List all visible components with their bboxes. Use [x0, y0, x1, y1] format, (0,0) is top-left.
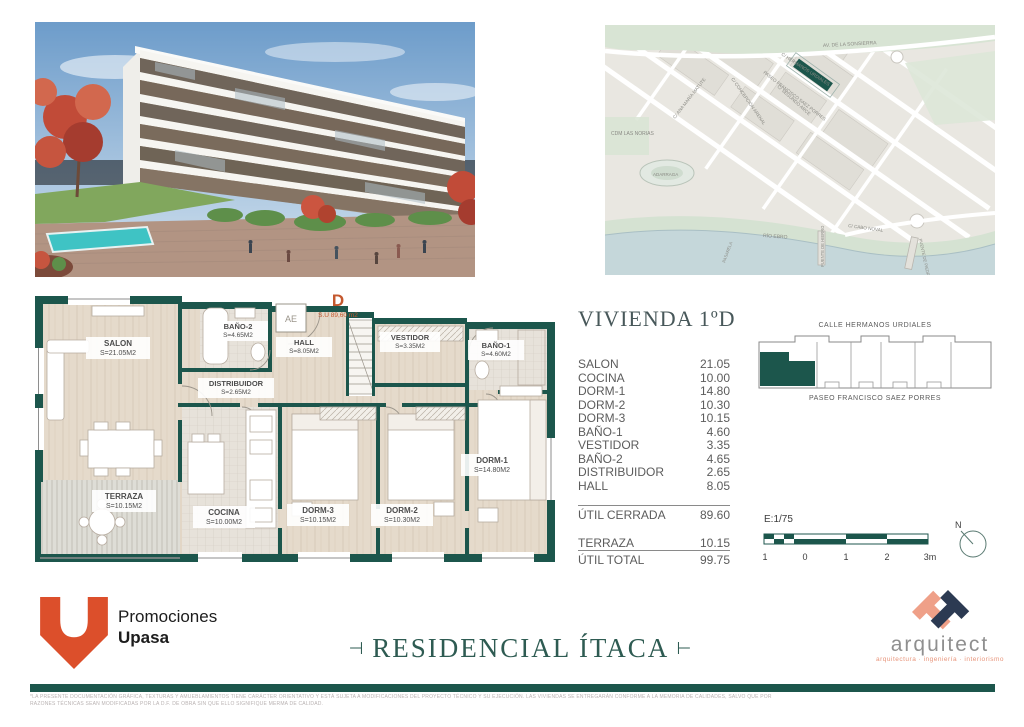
room-name: VESTIDOR — [391, 333, 430, 342]
room-label: VESTIDOR — [578, 439, 639, 453]
total-label: ÚTIL TOTAL — [578, 554, 644, 568]
room-value: 10.30 — [700, 399, 730, 413]
terrace-value: 10.15 — [700, 537, 730, 551]
table-row: DORM-114.80 — [578, 385, 730, 399]
unit-title: VIVIENDA 1ºD — [578, 306, 748, 332]
scale-tick: 3m — [924, 552, 937, 562]
floor-plan: AE D S.U 89,60 m2 SALON S=21.05M2 TERRAZ… — [30, 290, 560, 575]
room-name: DORM-3 — [302, 506, 334, 515]
subtotal-row: ÚTIL CERRADA89.60 — [578, 505, 730, 523]
room-label: HALL — [578, 480, 608, 494]
room-name: DORM-1 — [476, 456, 508, 465]
room-value: 4.65 — [707, 453, 730, 467]
room-area: S=10.15M2 — [300, 517, 336, 524]
unit-area-note: S.U 89,60 m2 — [318, 312, 358, 319]
title-ornament-right: ⊢ — [677, 639, 692, 658]
table-row: COCINA10.00 — [578, 372, 730, 386]
elevator: AE — [276, 304, 306, 332]
room-name: DISTRIBUIDOR — [209, 379, 264, 388]
room-name: DORM-2 — [386, 506, 418, 515]
room-label: BAÑO-1 — [578, 426, 623, 440]
table-row: HALL8.05 — [578, 480, 730, 494]
promoter-name: Promociones Upasa — [118, 606, 217, 648]
terrace-row: TERRAZA10.15 — [578, 537, 730, 551]
room-area: S=21.05M2 — [100, 350, 136, 357]
table-row: DORM-310.15 — [578, 412, 730, 426]
room-value: 21.05 — [700, 358, 730, 372]
building-render-image — [35, 22, 475, 277]
elevator-label: AE — [285, 314, 297, 324]
scale-tick: 2 — [884, 552, 889, 562]
street-top-label: CALLE HERMANOS URDIALES — [818, 322, 931, 329]
room-label: COCINA — [578, 372, 625, 386]
room-name: BAÑO-2 — [224, 322, 253, 331]
room-area: S=14.80M2 — [474, 467, 510, 474]
arquitect-logo — [906, 584, 974, 632]
scale-bar: 1 0 1 2 3m — [762, 534, 936, 562]
stairs — [348, 320, 374, 394]
room-area: S=10.15M2 — [106, 503, 142, 510]
location-map: AV. DE LA SONSIERRA C/ HERMANOS URDIALES… — [605, 25, 995, 275]
room-label: DISTRIBUIDOR — [578, 466, 664, 480]
room-label: DORM-1 — [578, 385, 625, 399]
table-row: DORM-210.30 — [578, 399, 730, 413]
room-area: S=2.65M2 — [221, 389, 251, 396]
total-value: 99.75 — [700, 554, 730, 568]
room-value: 14.80 — [700, 385, 730, 399]
room-value: 10.15 — [700, 412, 730, 426]
table-row: BAÑO-24.65 — [578, 453, 730, 467]
room-name: TERRAZA — [105, 492, 143, 501]
north-arrow: N — [955, 520, 986, 557]
table-row: SALON21.05 — [578, 358, 730, 372]
disclaimer: *LA PRESENTE DOCUMENTACIÓN GRÁFICA, TEXT… — [30, 694, 930, 707]
room-label: BAÑO-2 — [578, 453, 623, 467]
room-area: S=10.30M2 — [384, 517, 420, 524]
room-area: S=4.60M2 — [481, 351, 511, 358]
room-label: DORM-3 — [578, 412, 625, 426]
room-area: S=4.65M2 — [223, 332, 253, 339]
scale-tick: 1 — [843, 552, 848, 562]
unit-info-panel: VIVIENDA 1ºD SALON21.05 COCINA10.00 DORM… — [578, 306, 748, 568]
architect-name: arquitect — [870, 634, 1010, 656]
room-name: HALL — [294, 338, 314, 347]
subtotal-label: ÚTIL CERRADA — [578, 509, 666, 523]
terrace-label: TERRAZA — [578, 537, 634, 551]
room-label: SALON — [578, 358, 619, 372]
room-area: S=3.35M2 — [395, 343, 425, 350]
title-ornament-left: ⊣ — [349, 639, 364, 658]
room-name: BAÑO-1 — [482, 341, 511, 350]
roundabout — [891, 51, 903, 63]
total-row: ÚTIL TOTAL99.75 — [578, 550, 730, 568]
scale-tick: 0 — [802, 552, 807, 562]
architect-block: arquitect arquitectura · ingeniería · in… — [870, 584, 1010, 663]
room-value: 4.60 — [707, 426, 730, 440]
street-bottom-label: PASEO FRANCISCO SAEZ PORRES — [809, 395, 941, 402]
table-row: DISTRIBUIDOR2.65 — [578, 466, 730, 480]
project-title: ⊣ RESIDENCIAL ÍTACA ⊢ — [300, 633, 740, 664]
block-location-diagram: CALLE HERMANOS URDIALES PASEO FRANCISCO … — [755, 316, 995, 404]
room-name: SALON — [104, 339, 132, 348]
subtotal-value: 89.60 — [700, 509, 730, 523]
scale-label: E:1/75 — [764, 514, 793, 525]
footer-divider-bar — [30, 684, 995, 692]
scale-tick: 1 — [762, 552, 767, 562]
unit-letter-label: D — [332, 291, 344, 310]
room-value: 10.00 — [700, 372, 730, 386]
upasa-logo — [38, 597, 110, 669]
room-name: COCINA — [208, 508, 240, 517]
north-label: N — [955, 520, 962, 530]
plan-sheet: AV. DE LA SONSIERRA C/ HERMANOS URDIALES… — [0, 0, 1024, 727]
project-title-text: RESIDENCIAL ÍTACA — [372, 633, 668, 663]
room-value: 3.35 — [707, 439, 730, 453]
map-area-label: ADARRAGA — [653, 172, 678, 177]
table-row: BAÑO-14.60 — [578, 426, 730, 440]
map-area-label: CDM LAS NORIAS — [611, 131, 654, 137]
map-bridge-label: PUENTE DE HIERRO — [820, 225, 825, 267]
promoter-line1: Promociones — [118, 606, 217, 627]
room-label: DORM-2 — [578, 399, 625, 413]
table-row: VESTIDOR3.35 — [578, 439, 730, 453]
room-area: S=8.05M2 — [289, 348, 319, 355]
area-table: SALON21.05 COCINA10.00 DORM-114.80 DORM-… — [578, 358, 730, 568]
room-value: 2.65 — [707, 466, 730, 480]
room-area: S=10.00M2 — [206, 519, 242, 526]
disclaimer-line2: RAZONES TÉCNICAS SEAN MODIFICADAS POR LA… — [30, 701, 930, 708]
architect-tagline: arquitectura · ingeniería · interiorismo — [870, 656, 1010, 663]
scale-bar-group: E:1/75 1 0 1 2 3m N — [758, 506, 1008, 572]
room-value: 8.05 — [707, 480, 730, 494]
promoter-line2: Upasa — [118, 627, 217, 648]
